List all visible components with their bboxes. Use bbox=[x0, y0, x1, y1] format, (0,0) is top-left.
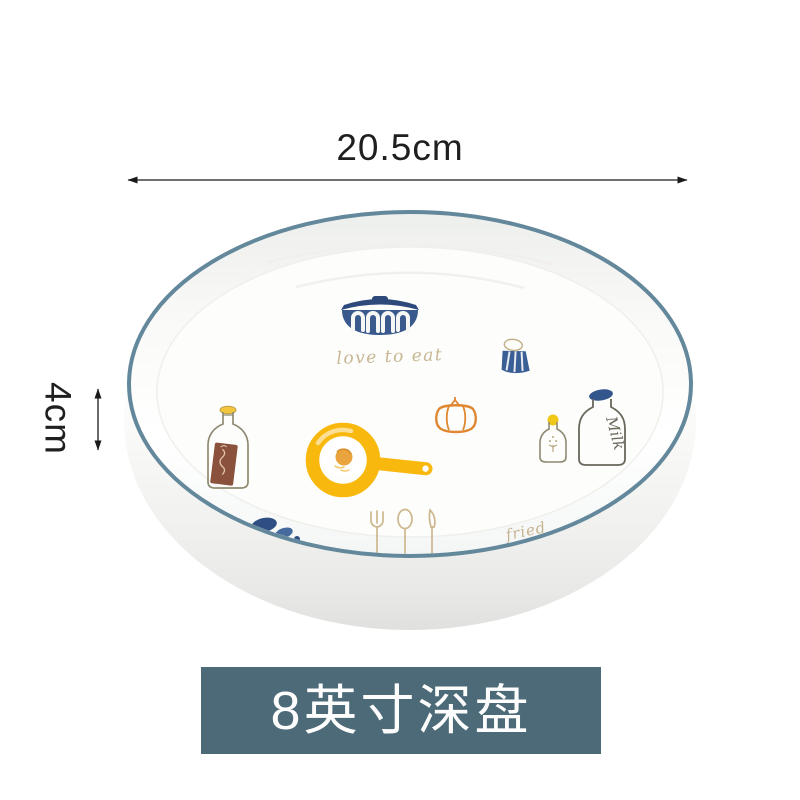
product-image: 20.5cm 4cm bbox=[0, 0, 800, 800]
plate-floor bbox=[157, 247, 663, 537]
product-label-bar: 8英寸深盘 bbox=[201, 667, 601, 754]
product-label-text: 8英寸深盘 bbox=[270, 684, 531, 738]
love-to-eat-script: love to eat bbox=[336, 345, 443, 369]
